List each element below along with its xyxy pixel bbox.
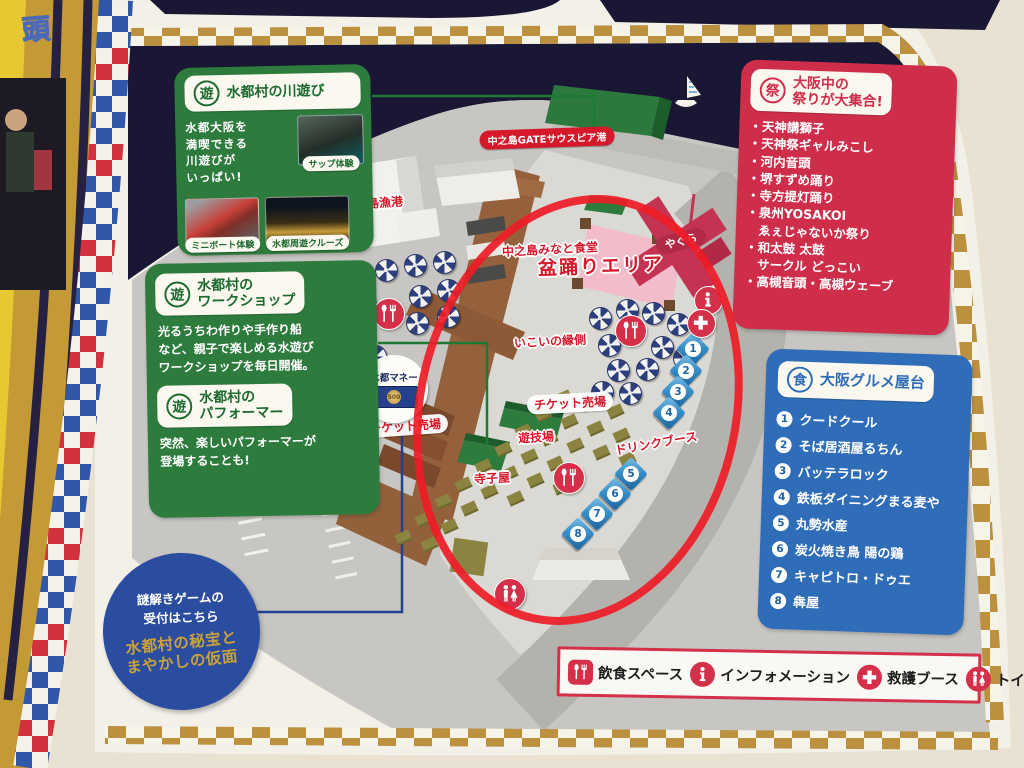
cross-icon	[857, 664, 882, 689]
stall-name: バッテラロック	[797, 462, 889, 484]
gourmet-list-item: 6炭火焼き鳥 陽の鶏	[772, 539, 957, 564]
legend-item: トイレ	[966, 666, 1024, 692]
info-icon	[690, 661, 715, 686]
legend-label: 飲食スペース	[598, 662, 684, 684]
gourmet-list-item: 3バッテラロック	[774, 461, 959, 486]
stall-number-badge: 6	[772, 540, 789, 557]
gourmet-list-item: 1クードクール	[776, 409, 961, 434]
gourmet-list-item: 2そば居酒屋るちん	[775, 435, 960, 460]
legend-item: 飲食スペース	[568, 659, 684, 686]
utensils-icon	[568, 659, 593, 684]
photo-label: 水都周遊クルーズ	[266, 234, 350, 251]
legend-item: インフォメーション	[690, 661, 850, 689]
stall-name: クードクール	[799, 410, 878, 432]
stall-number-badge: 4	[774, 488, 791, 505]
stall-number-badge: 2	[775, 436, 792, 453]
stall-number-badge: 8	[770, 592, 787, 609]
gourmet-list-item: 4鉄板ダイニングまる麦や	[773, 487, 958, 512]
gourmet-header: 食 大阪グルメ屋台	[777, 361, 934, 402]
matsuri-seal-icon: 祭	[759, 77, 786, 104]
food-seal-icon: 食	[786, 366, 813, 393]
river-play-panel: 遊 水都村の川遊び 水都大阪を 満喫できる 川遊びが いっぱい! サップ体験 ミ…	[174, 64, 374, 256]
gourmet-list: 1クードクール2そば居酒屋るちん3バッテラロック4鉄板ダイニングまる麦や5丸勢水…	[768, 409, 961, 616]
stall-number-badge: 3	[774, 462, 791, 479]
photo-of-festival-map-pamphlet: { "left_page": { "fragment_text": "頭" },…	[0, 0, 1024, 768]
stall-name: 炭火焼き鳥 陽の鶏	[795, 540, 904, 563]
photo-cruise: 水都周遊クルーズ	[265, 195, 350, 245]
gourmet-list-item: 5丸勢水産	[773, 513, 958, 538]
festival-list: ・天神講獅子・天神祭ギャルみこし・河内音頭・堺すずめ踊り・寺方提灯踊り・泉州YO…	[744, 118, 946, 297]
river-play-title: 水都村の川遊び	[226, 83, 324, 101]
riddle-line2: 受付はこちら	[143, 608, 219, 629]
stall-name: 丸勢水産	[796, 514, 849, 535]
toilet-icon	[966, 666, 991, 691]
banknote-value: 500	[387, 390, 401, 404]
stall-number-badge: 5	[773, 514, 790, 531]
photo-label: ミニボート体験	[185, 236, 260, 253]
festival-lineup-panel: 祭 大阪中の 祭りが大集合! ・天神講獅子・天神祭ギャルみこし・河内音頭・堺すず…	[732, 59, 957, 335]
stall-name: 鉄板ダイニングまる麦や	[796, 488, 940, 512]
legend-item: 救護ブース	[857, 664, 959, 691]
gourmet-list-item: 8犇屋	[770, 591, 955, 616]
river-play-description: 水都大阪を 満喫できる 川遊びが いっぱい!	[185, 118, 293, 187]
festival-header: 祭 大阪中の 祭りが大集合!	[750, 69, 893, 116]
stall-name: キャピトロ・ドゥエ	[794, 566, 912, 589]
performer-title: 水都村の パフォーマー	[199, 389, 284, 423]
stall-number-badge: 1	[776, 410, 793, 427]
gourmet-title: 大阪グルメ屋台	[820, 372, 926, 393]
gourmet-list-item: 7キャピトロ・ドゥエ	[771, 565, 956, 590]
performer-description: 突然、楽しいパフォーマーが 登場することも!	[160, 432, 370, 472]
photo-sup-experience: サップ体験	[297, 114, 364, 165]
photo-miniboat-experience: ミニボート体験	[185, 197, 260, 247]
performer-header: 遊 水都村の パフォーマー	[157, 384, 293, 429]
river-play-header: 遊 水都村の川遊び	[184, 72, 361, 112]
legend-label: トイレ	[996, 668, 1024, 690]
play-seal-icon: 遊	[164, 281, 190, 307]
workshop-performer-panel: 遊 水都村の ワークショップ 光るうちわ作りや手作り船 など、親子で楽しめる水遊…	[145, 260, 380, 518]
legend-label: インフォメーション	[720, 664, 850, 687]
workshop-description: 光るうちわ作りや手作り船 など、親子で楽しめる水遊び ワークショップを毎日開催。	[158, 319, 368, 377]
photo-label: サップ体験	[302, 155, 359, 171]
workshop-title: 水都村の ワークショップ	[197, 276, 296, 310]
workshop-header: 遊 水都村の ワークショップ	[155, 271, 305, 316]
festival-title: 大阪中の 祭りが大集合!	[792, 75, 883, 110]
play-seal-icon: 遊	[193, 80, 220, 107]
legend-label: 救護ブース	[887, 667, 959, 689]
left-page-text-fragment: 頭	[21, 7, 52, 49]
play-seal-icon: 遊	[166, 394, 192, 420]
stall-name: そば居酒屋るちん	[798, 436, 903, 459]
stall-name: 犇屋	[793, 592, 820, 612]
stall-number-badge: 7	[771, 566, 788, 583]
gourmet-stalls-panel: 食 大阪グルメ屋台 1クードクール2そば居酒屋るちん3バッテラロック4鉄板ダイニ…	[757, 348, 973, 635]
map-legend-bar: 飲食スペースインフォメーション救護ブーストイレ	[557, 646, 982, 703]
